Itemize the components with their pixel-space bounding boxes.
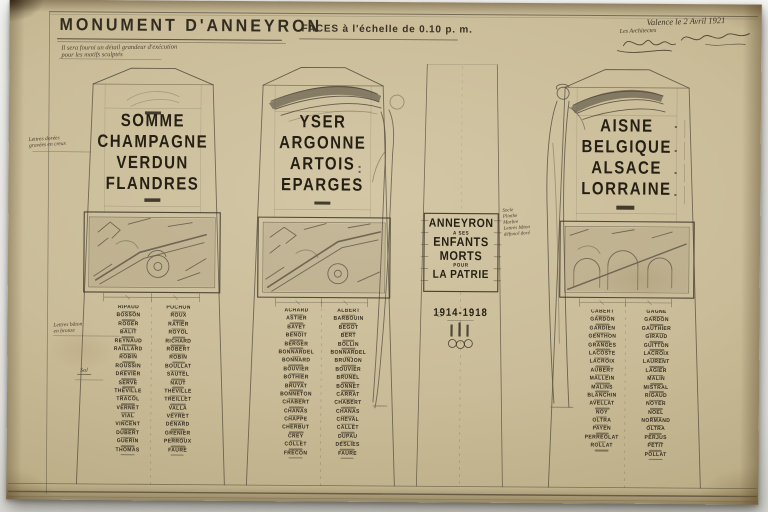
memorial-surname: FRECON: [284, 451, 308, 457]
dedication-panel: ANNEYRONA SESENFANTSMORTSPOURLA PATRIE: [424, 215, 498, 280]
memorial-surname: GRENIER: [165, 431, 191, 437]
memorial-surname: VINCENT: [115, 422, 140, 428]
memorial-name: BOTHIER: [283, 375, 308, 383]
memorial-surname: CARRAT: [336, 392, 359, 398]
memorial-surname: VEYRET: [167, 414, 189, 420]
right-names-column-1: CABERTGARDONGARDIENGENTHONGRANGESLACOSTE…: [578, 309, 627, 452]
memorial-surname: BOTHIER: [283, 375, 308, 381]
memorial-surname: REYNAUD: [115, 338, 143, 344]
memorial-surname: GARDON: [644, 318, 669, 324]
memorial-surname: RIGAUD: [645, 393, 667, 399]
memorial-name: BENOIT: [286, 333, 307, 341]
right-relief-panel: [560, 221, 695, 298]
memorial-surname: CHEVAL: [337, 417, 360, 423]
memorial-surname: PAYEN: [593, 427, 611, 433]
memorial-surname: ROUSSIN: [115, 364, 141, 370]
memorial-surname: TRACOL: [116, 397, 139, 403]
memorial-firstname-mark: [649, 458, 663, 460]
memorial-surname: FAURE: [338, 451, 357, 457]
dedication-line: LA PATRIE: [433, 268, 489, 281]
memorial-surname: BOUVIER: [335, 367, 361, 373]
memorial-surname: LACOSTE: [589, 351, 616, 357]
battle-name: FLANDRES: [100, 171, 204, 197]
memorial-surname: BRUYAT: [285, 384, 307, 390]
memorial-surname: VALLA: [169, 406, 187, 412]
memorial-name: COLLET: [284, 443, 306, 451]
architect-signatures: [617, 33, 749, 54]
memorial-surname: GRANGES: [588, 343, 616, 349]
memorial-surname: NOYER: [646, 402, 666, 408]
memorial-surname: LAURENT: [643, 360, 670, 366]
memorial-surname: LACROIX: [590, 360, 615, 366]
memorial-name: FAURE: [338, 451, 357, 459]
memorial-surname: BONNARDEL: [330, 350, 366, 356]
memorial-surname: BARBOUIN: [333, 317, 363, 323]
memorial-name: POLLAT: [645, 452, 667, 460]
left-names-column-2: POCHONROUXRATIERROYOLRICHARDROBERTROBINB…: [154, 305, 203, 456]
memorial-surname: MALLEIN: [590, 376, 615, 382]
ground-label: Sol: [77, 368, 91, 375]
memorial-surname: ALBERT: [337, 309, 360, 315]
left-relief-panel: [84, 212, 221, 293]
memorial-surname: BOULLAT: [165, 364, 191, 370]
memorial-surname: GAGNE: [646, 310, 666, 316]
memorial-surname: RAILLARD: [114, 347, 143, 353]
middle-names-column-2: ALBERTBARBOUINBEGOTBERTBOLLINBONNARDELBR…: [324, 309, 373, 460]
memorial-surname: PERREOLAT: [585, 435, 619, 441]
memorial-firstname-mark: [171, 454, 184, 456]
memorial-name: GUERIN: [117, 439, 139, 447]
scale-note: FACES à l'échelle de 0.10 p. m.: [302, 23, 473, 35]
memorial-surname: LACROIX: [644, 352, 669, 358]
memorial-surname: GAUTHIER: [642, 326, 671, 332]
memorial-surname: SERVE: [119, 380, 138, 386]
photo-background: MONUMENT D'ANNEYRON FACES à l'échelle de…: [0, 0, 768, 512]
memorial-surname: NORMAND: [641, 419, 670, 425]
memorial-surname: MALINS: [591, 385, 613, 391]
memorial-surname: AUBERT: [591, 368, 614, 374]
memorial-surname: RICHARD: [165, 339, 191, 345]
memorial-surname: DENARD: [166, 423, 190, 429]
memorial-name: GENTHON: [588, 335, 616, 343]
memorial-surname: CHANAS: [284, 409, 308, 415]
memorial-surname: BOUVIER: [283, 367, 309, 373]
memorial-name: BRUNEL: [336, 376, 359, 384]
memorial-surname: POCHON: [166, 305, 190, 311]
memorial-surname: CHABERT: [334, 401, 361, 407]
face-right-battle-names: AISNEBELGIQUEALSACELORRAINE: [568, 115, 685, 200]
memorial-surname: PERROUX: [164, 439, 192, 445]
memorial-name: ROLLAT: [590, 444, 612, 452]
memorial-surname: PETIT: [648, 444, 664, 450]
memorial-name: SAUTEL: [167, 373, 189, 381]
annotation-plinth-letters: SoclePlintheMarbreLettres bâtondéfoncé d…: [502, 205, 560, 238]
memorial-surname: TREILLET: [164, 398, 191, 404]
memorial-surname: ROBIN: [119, 355, 137, 361]
memorial-name: AVELLAT: [589, 402, 614, 410]
memorial-name: FAURE: [168, 448, 187, 456]
memorial-surname: CHERBUT: [282, 426, 309, 432]
memorial-surname: BONNARDEL: [278, 350, 314, 356]
memorial-surname: CHABERT: [282, 400, 309, 406]
memorial-firstname-mark: [289, 457, 303, 459]
execution-note: Il sera fourni un détail grandeur d'exéc…: [61, 44, 177, 59]
memorial-surname: ASTIER: [286, 316, 307, 322]
memorial-surname: BOLLIN: [338, 342, 359, 348]
memorial-name: PETIT: [648, 444, 664, 452]
memorial-surname: MISTRAL: [644, 385, 669, 391]
memorial-surname: ROBERT: [167, 347, 191, 353]
memorial-surname: OLTRA: [646, 427, 665, 433]
memorial-surname: BONNARD: [282, 358, 310, 364]
memorial-surname: OLTRA: [592, 418, 611, 424]
memorial-surname: SAUTEL: [167, 372, 189, 378]
memorial-surname: BRUNEL: [336, 376, 359, 382]
memorial-surname: LAGIER: [645, 368, 666, 374]
execution-note-line2: pour les motifs sculptés: [61, 51, 177, 59]
memorial-surname: NAUT: [170, 381, 186, 387]
memorial-name: FRECON: [284, 451, 308, 459]
middle-relief-panel: [258, 217, 391, 298]
memorial-name: DESLIES: [336, 443, 360, 451]
years-label: 1914-1918: [424, 306, 498, 319]
memorial-surname: THEVILLE: [114, 389, 141, 395]
memorial-surname: ROBIN: [169, 356, 187, 362]
memorial-surname: NOY: [596, 410, 608, 416]
memorial-surname: AVELLAT: [589, 401, 614, 407]
memorial-surname: PERJUS: [644, 435, 666, 441]
memorial-surname: BLANCHIN: [587, 393, 616, 399]
memorial-surname: CABERT: [591, 309, 614, 315]
memorial-name: MALLEIN: [590, 377, 615, 385]
memorial-name: MALIN: [647, 377, 665, 385]
memorial-surname: BENOIT: [286, 333, 307, 339]
memorial-surname: BEGOT: [339, 325, 359, 331]
memorial-surname: FAURE: [168, 448, 187, 454]
memorial-surname: ROUX: [170, 314, 186, 320]
memorial-surname: GARDON: [590, 318, 615, 324]
memorial-surname: CALLET: [337, 426, 359, 432]
memorial-surname: BONNET: [336, 384, 360, 390]
memorial-surname: GARDIEN: [590, 326, 616, 332]
memorial-surname: DESLIES: [336, 443, 360, 449]
memorial-surname: ACHARD: [285, 308, 309, 314]
memorial-firstname-mark: [121, 454, 135, 456]
middle-dimension-line: [276, 298, 368, 307]
memorial-surname: GENTHON: [588, 334, 616, 340]
memorial-name: GIRAUD: [645, 335, 667, 343]
memorial-surname: POLLAT: [645, 452, 667, 458]
right-dimension-line: [580, 298, 672, 307]
memorial-surname: BERGER: [284, 342, 308, 348]
memorial-surname: VIAL: [121, 414, 134, 420]
memorial-name: BERT: [341, 334, 356, 341]
memorial-surname: GUITTON: [644, 343, 669, 349]
memorial-surname: BOSSON: [116, 313, 140, 319]
memorial-surname: DUPAU: [338, 434, 357, 440]
memorial-surname: NOEL: [648, 410, 664, 416]
memorial-surname: BERT: [341, 334, 356, 340]
memorial-surname: VERNET: [117, 406, 140, 412]
face-middle-battle-names: YSERARGONNEARTOISEPARGES: [266, 111, 379, 196]
memorial-surname: RIPAUD: [118, 305, 139, 311]
memorial-surname: ROYOL: [169, 330, 189, 336]
right-names-column-2: GAGNEGARDONGAUTHIERGIRAUDGUITTONLACROIXL…: [632, 310, 681, 461]
memorial-surname: THOMAS: [116, 448, 140, 454]
left-dimension-line: [104, 293, 200, 302]
memorial-surname: ROLLAT: [590, 443, 612, 449]
memorial-name: THOMAS: [116, 448, 140, 456]
monument-title: MONUMENT D'ANNEYRON: [60, 16, 320, 37]
memorial-surname: CHANAS: [336, 409, 360, 415]
memorial-name: ROYOL: [169, 331, 189, 339]
left-face-top-sketch: [127, 91, 179, 106]
face-left-battle-names: SOMMECHAMPAGNEVERDUNFLANDRES: [100, 110, 205, 195]
memorial-surname: BAYET: [287, 325, 306, 331]
memorial-surname: COLLET: [284, 442, 306, 448]
memorial-surname: CREY: [288, 434, 304, 440]
memorial-surname: GUERIN: [117, 439, 139, 445]
dedication-line: ENFANTS: [433, 236, 489, 250]
memorial-surname: BONNETON: [280, 392, 312, 398]
memorial-firstname-mark: [341, 457, 354, 459]
middle-names-column-1: ACHARDASTIERBAYETBENOITBERGERBONNARDELBO…: [272, 308, 321, 459]
memorial-surname: MALIN: [647, 377, 665, 383]
battle-name: EPARGES: [266, 172, 378, 198]
memorial-firstname-mark: [595, 450, 609, 452]
battle-name: LORRAINE: [568, 176, 684, 202]
memorial-surname: DUBERT: [116, 431, 139, 437]
memorial-surname: CHAPPE: [284, 417, 307, 423]
memorial-surname: BRUNJON: [334, 359, 362, 365]
memorial-surname: DREVIER: [116, 372, 141, 378]
memorial-name: DREVIER: [116, 372, 141, 380]
drawing-sheet: MONUMENT D'ANNEYRON FACES à l'échelle de…: [6, 0, 761, 505]
memorial-surname: GIRAUD: [645, 335, 667, 341]
memorial-surname: THEVILLE: [164, 389, 191, 395]
memorial-surname: RATIER: [168, 322, 189, 328]
